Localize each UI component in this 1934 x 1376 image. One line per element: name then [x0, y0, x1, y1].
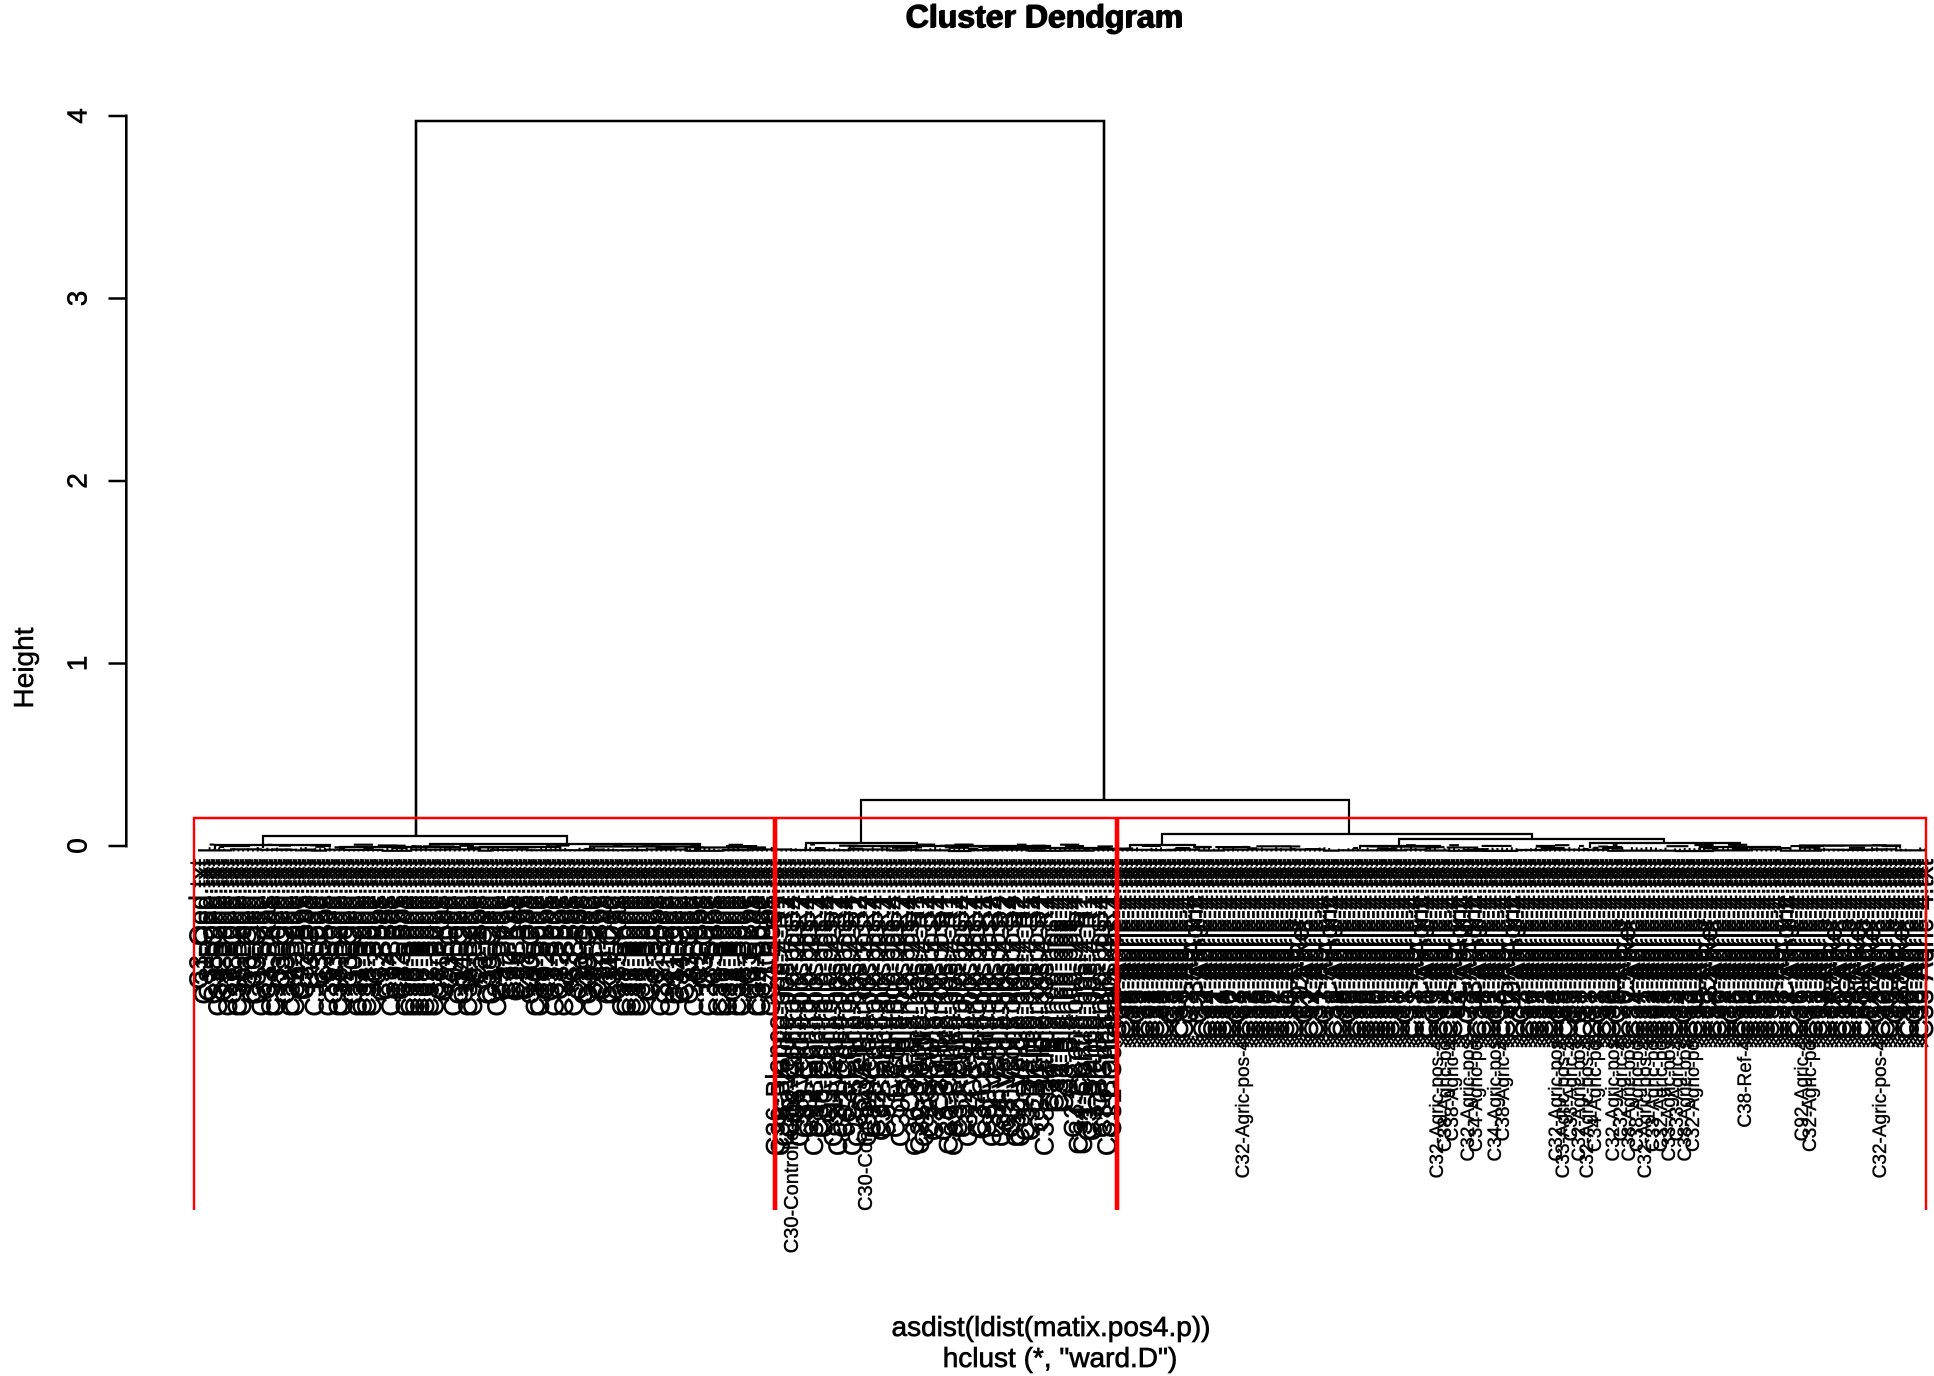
svg-text:Cluster Dendgram: Cluster Dendgram [907, 0, 1184, 34]
svg-text:asdist(ldist(matix.pos4.p)): asdist(ldist(matix.pos4.p)) [892, 1311, 1211, 1342]
svg-text:C38-Agric-4: C38-Agric-4 [1493, 1040, 1514, 1142]
svg-text:1: 1 [62, 656, 93, 672]
svg-text:2: 2 [62, 473, 93, 489]
svg-text:C34-Agric-po: C34-Agric-po [1466, 1040, 1487, 1152]
svg-text:C33-Agric-4.txt: C33-Agric-4.txt [1909, 859, 1934, 1040]
svg-text:3: 3 [62, 291, 93, 307]
svg-text:C32-Agric-po: C32-Agric-po [1800, 1040, 1821, 1152]
svg-text:C32-Agric-pos-4: C32-Agric-pos-4 [1233, 1040, 1254, 1179]
svg-text:Height: Height [8, 627, 39, 708]
svg-text:4: 4 [62, 108, 93, 124]
svg-text:0: 0 [62, 838, 93, 854]
svg-text:C32-Agric-po: C32-Agric-po [1683, 1040, 1704, 1152]
svg-text:C30-Controllo-pos-4.t: C30-Controllo-pos-4.t [781, 1062, 803, 1254]
svg-text:C30-Contr-pos-4: C30-Contr-pos-4 [855, 1062, 877, 1211]
svg-text:C32-Agric-pos-4: C32-Agric-pos-4 [1870, 1040, 1891, 1179]
svg-text:hclust (*, "ward.D"): hclust (*, "ward.D") [943, 1342, 1178, 1373]
svg-text:C38-Ref-4: C38-Ref-4 [1735, 1040, 1756, 1128]
